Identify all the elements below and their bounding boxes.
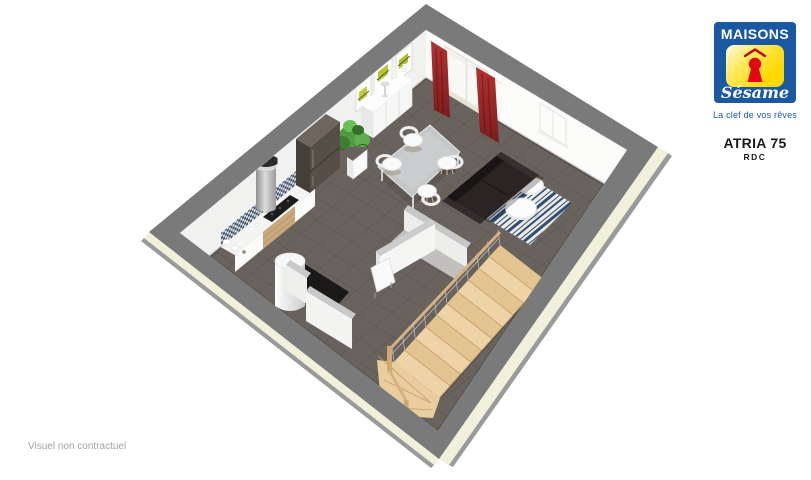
brand-panel: MAISONS Sésame La clef de vos rêves ATRI… — [708, 22, 802, 162]
brand-tagline: La clef de vos rêves — [708, 110, 802, 120]
disclaimer-text: Visuel non contractuel — [28, 441, 126, 452]
brand-name-script: Sésame — [714, 83, 796, 102]
screenshot-root: MAISONS Sésame La clef de vos rêves ATRI… — [0, 0, 811, 480]
floorplan-3d-render — [0, 0, 811, 480]
plan-level-label: RDC — [708, 152, 802, 162]
brand-yellow-badge — [726, 45, 784, 87]
plan-model-title: ATRIA 75 — [708, 135, 802, 151]
brand-logo: MAISONS Sésame — [714, 22, 796, 103]
keyhole-icon — [726, 45, 784, 87]
brand-name-top: MAISONS — [714, 22, 796, 42]
